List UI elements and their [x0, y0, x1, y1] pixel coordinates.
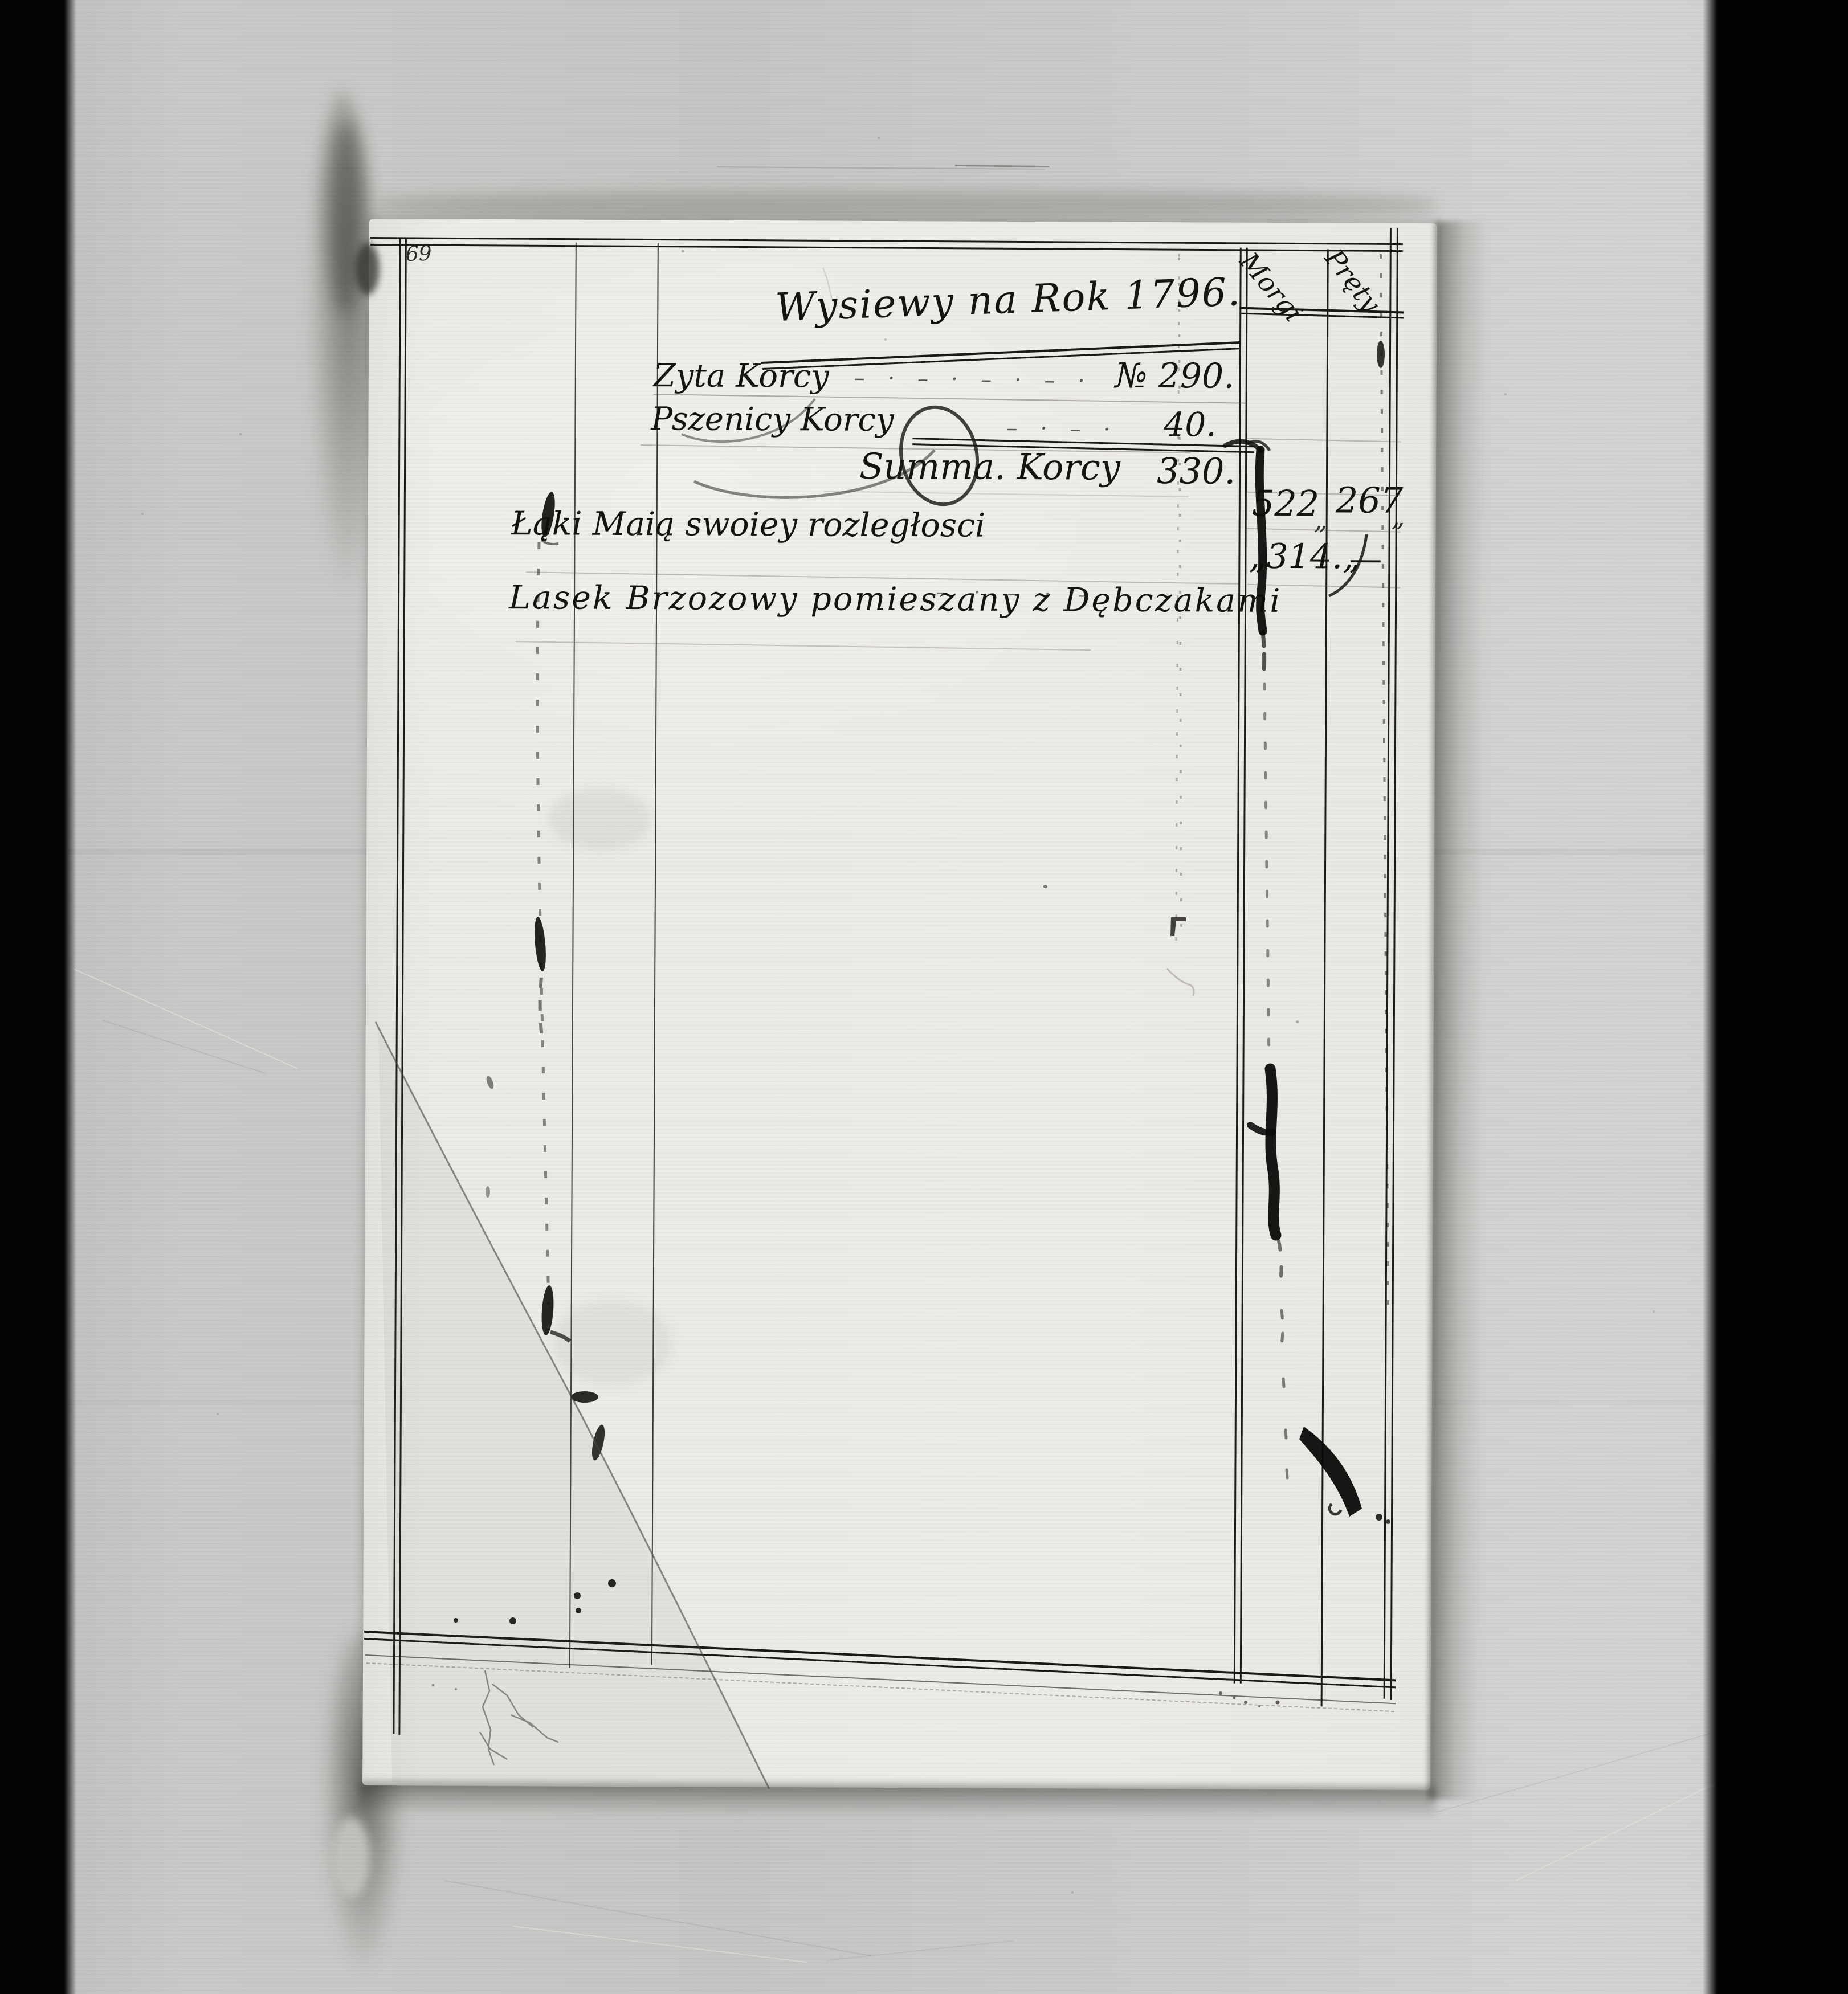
paper-speck	[682, 250, 684, 252]
dust-speck	[1071, 1891, 1074, 1894]
entry-label: Zyta Korcy	[654, 360, 829, 393]
ghost-smudge	[549, 787, 651, 850]
page-title: Wysiewy na Rok 1796.	[774, 273, 1241, 328]
table-top-border	[370, 244, 1403, 252]
pencil-mark	[717, 166, 1045, 170]
leader-dots: – · – · – · – ·	[854, 367, 1093, 391]
entry-label: Summa. Korcy	[859, 449, 1120, 485]
morgi-column-border	[1240, 248, 1247, 1684]
film-edge-right	[1703, 0, 1848, 1994]
scratch-line	[513, 1926, 807, 1963]
scratch-line	[74, 969, 299, 1069]
film-edge-left	[0, 0, 76, 1994]
header-box-rule	[1239, 313, 1404, 318]
dust-speck	[878, 137, 880, 139]
paper-speck	[1296, 1020, 1299, 1023]
column-rule	[569, 243, 577, 1668]
scratch-line	[1436, 1724, 1743, 1813]
right-edge-shadow	[1428, 221, 1487, 1799]
punch-hole-highlight	[332, 1817, 370, 1897]
entry-value: 40.	[1164, 408, 1217, 441]
column-divider	[1321, 249, 1329, 1706]
table-right-border	[1384, 228, 1392, 1699]
entry-value-morgi: 522	[1252, 486, 1320, 522]
dust-speck	[141, 513, 144, 515]
value-separator: „	[1392, 504, 1405, 530]
dust-speck	[217, 1413, 219, 1415]
bottom-edge-shadow	[359, 1782, 1436, 1820]
archival-photo: 69 Wysiewy na Rok 1796. Morgi Pręty Zyta…	[0, 0, 1848, 1994]
value-separator: „	[1314, 506, 1328, 533]
table-top-border	[370, 237, 1403, 245]
entry-value: № 290.	[1115, 359, 1235, 394]
top-edge-shadow	[376, 191, 1436, 220]
column-header-prety: Pręty	[1320, 244, 1385, 317]
paper-speck	[884, 338, 887, 341]
header-box-rule	[1239, 307, 1404, 313]
dust-speck	[1653, 1310, 1655, 1313]
page-number: 69	[405, 244, 432, 265]
pencil-mark	[955, 165, 1049, 167]
leader-dots: – · – ·	[1006, 417, 1119, 440]
row-rule	[516, 641, 1091, 651]
ghost-smudge	[552, 1300, 672, 1386]
entry-value: 330.	[1157, 453, 1235, 489]
ledger-page: 69 Wysiewy na Rok 1796. Morgi Pręty Zyta…	[362, 219, 1437, 1790]
dust-speck	[1504, 393, 1507, 395]
entry-value-morgi: „314.„	[1249, 540, 1360, 574]
table-right-border	[1390, 228, 1398, 1700]
entry-value-prety: —	[1349, 542, 1382, 575]
entry-label: Pszenicy Korcy	[651, 403, 894, 436]
column-rule	[651, 243, 659, 1665]
row-rule	[824, 491, 1189, 497]
edge-notch-shadow	[355, 243, 379, 295]
entry-label: Lasek Brzozowy pomieszany z Dębczakami	[509, 582, 1282, 618]
scratch-line	[826, 1940, 1013, 1961]
scratch-line	[444, 1880, 871, 1956]
scratch-line	[103, 1020, 266, 1074]
entry-label: Łąki Maią swoiey rozległosci	[511, 508, 986, 542]
dust-speck	[239, 433, 242, 435]
paper-speck	[1043, 885, 1047, 888]
value-cell-rule	[1246, 438, 1401, 443]
